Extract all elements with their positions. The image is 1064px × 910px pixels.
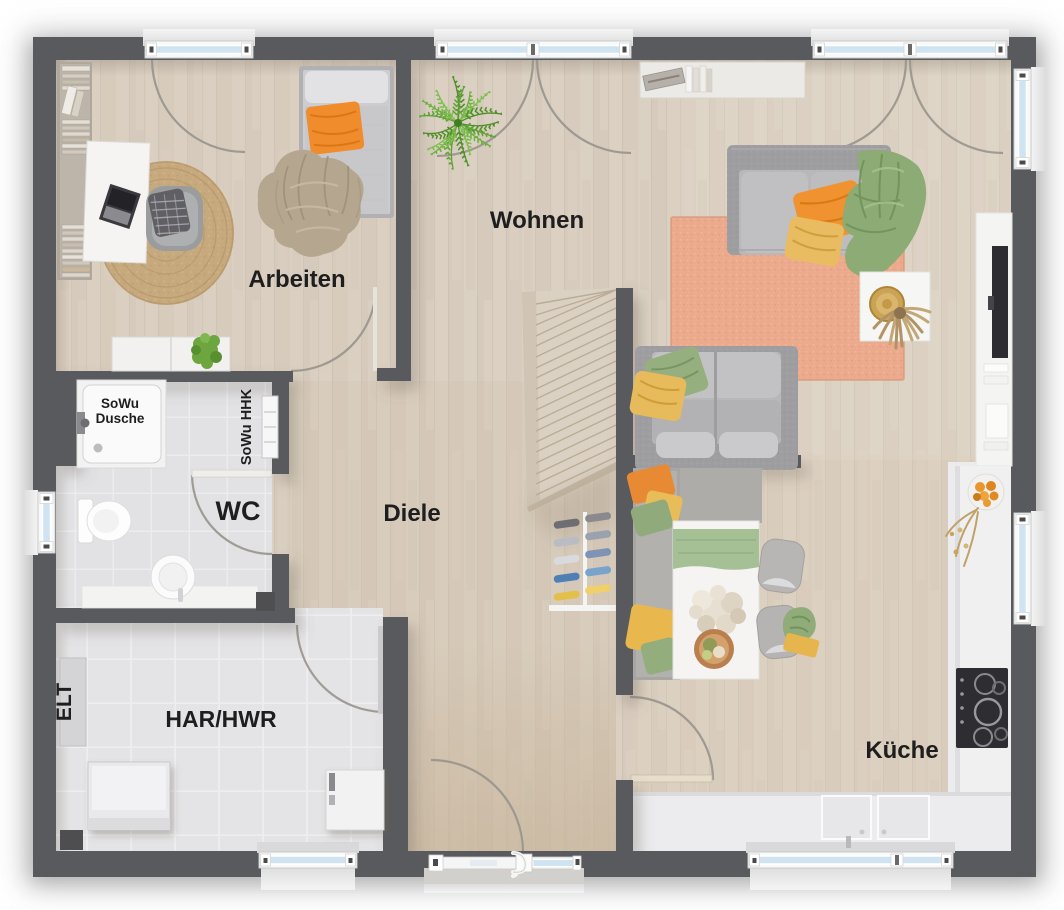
svg-text:WC: WC	[216, 496, 261, 526]
svg-text:Wohnen: Wohnen	[490, 207, 584, 234]
svg-text:Küche: Küche	[865, 737, 938, 764]
svg-text:HAR/HWR: HAR/HWR	[165, 706, 277, 732]
svg-text:SoWu HHK: SoWu HHK	[239, 388, 255, 465]
svg-text:Dusche: Dusche	[96, 411, 145, 426]
svg-text:ELT: ELT	[53, 683, 76, 721]
svg-text:Arbeiten: Arbeiten	[248, 266, 345, 293]
svg-text:SoWu: SoWu	[101, 396, 139, 411]
svg-text:Diele: Diele	[383, 500, 440, 527]
